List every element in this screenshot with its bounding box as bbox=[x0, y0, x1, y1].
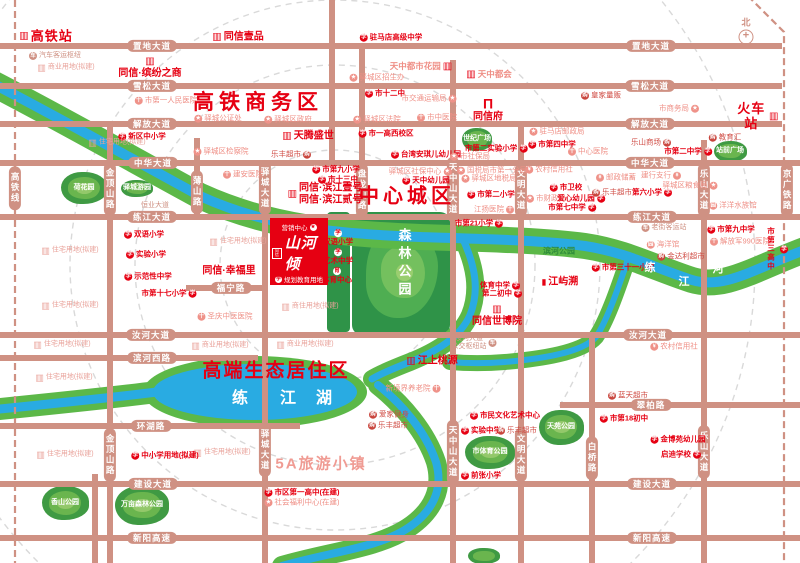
bnk-icon: ¥ bbox=[596, 174, 604, 182]
poi-市十二中: 学市十二中 bbox=[365, 90, 405, 99]
bld-icon: ▥ bbox=[282, 131, 291, 141]
poi-市区第一高中(在建): 学市区第一高中(在建) bbox=[265, 489, 340, 498]
poi-市第七中学: 市第七中学学 bbox=[548, 204, 596, 213]
poi-label: 农村信用社 bbox=[660, 343, 698, 352]
lnd-icon: ▥ bbox=[41, 247, 50, 256]
poi-市第一人民医院: 十市第一人民医院 bbox=[135, 97, 198, 106]
poi-label: 示范性中学 bbox=[134, 273, 172, 282]
planned-education-land-label: 学规划教育用地 bbox=[275, 274, 323, 284]
park-label: 市体育公园 bbox=[465, 448, 515, 456]
poi-海洋馆: 园海洋馆 bbox=[647, 241, 680, 250]
poi-label: 市第九中学 bbox=[717, 226, 755, 235]
road-建设大道 bbox=[0, 481, 800, 487]
poi-label: 双语小学 bbox=[323, 238, 353, 247]
sch-icon: 学 bbox=[592, 264, 600, 272]
poi-同信·滨江壹号同信·滨江贰号: ▥同信·滨江壹号 同信·滨江贰号 bbox=[288, 183, 363, 206]
poi-前张小学: 学前张小学 bbox=[461, 472, 501, 481]
bld-icon: ▥ bbox=[406, 356, 415, 366]
poi-驻马店邮政局: ★驻马店邮政局 bbox=[530, 128, 585, 137]
poi-label: 乐丰超市 bbox=[507, 427, 537, 436]
poi-label: 新境界养老院 bbox=[386, 385, 431, 394]
poi-label: 建安医院 bbox=[233, 171, 263, 180]
mkt-icon: 购 bbox=[581, 92, 589, 100]
marketing-center-icon: ★ bbox=[310, 224, 317, 231]
lnd-icon: ▥ bbox=[209, 238, 218, 247]
park-label: 天苑公园 bbox=[539, 423, 584, 431]
poi-label: 天中都会 bbox=[478, 70, 512, 80]
poi-汽车客运枢纽: 车汽车客运枢纽 bbox=[29, 52, 81, 60]
poi-label: 市民文化艺术中心 bbox=[480, 412, 540, 421]
hos-icon: 十 bbox=[198, 313, 206, 321]
lake-west-arm-bank bbox=[0, 391, 165, 410]
road-汝河大道 bbox=[0, 332, 800, 338]
poi-驿城区招生办: ★驿城区招生办 bbox=[350, 74, 405, 83]
sch-icon: 学 bbox=[514, 290, 522, 298]
sch-icon: 学 bbox=[461, 427, 469, 435]
poi-label: 市第二小学 bbox=[477, 191, 515, 200]
poi-label: 高铁站 bbox=[31, 30, 73, 45]
schw-icon: 学 bbox=[334, 248, 342, 256]
road-label-金顶山路: 金顶山路 bbox=[104, 162, 116, 216]
park-驿城游园: 驿城游园 bbox=[121, 180, 153, 197]
bld-icon: ▥ bbox=[769, 112, 778, 122]
gov-icon: ★ bbox=[353, 116, 361, 124]
road-label-汝河大道: 汝河大道 bbox=[623, 329, 673, 341]
gov-icon: ★ bbox=[462, 175, 470, 183]
poi-商业用地(拟建): ▥商业用地(拟建) bbox=[191, 342, 248, 351]
poi-label: 滨河公园 bbox=[543, 246, 575, 255]
park-荷花园: 荷花园 bbox=[61, 172, 107, 204]
poi-label: 艺术中学 bbox=[323, 257, 353, 266]
poi-label: 乐丰超市 bbox=[378, 422, 408, 431]
poi-市第二中学: 市第二中学学 bbox=[664, 148, 712, 157]
bld-icon: ▥ bbox=[212, 32, 221, 42]
area-label-中心城区: 中心城区 bbox=[359, 180, 455, 209]
sch-icon: 学 bbox=[707, 226, 715, 234]
poi-label: 市第九小学 bbox=[322, 166, 360, 175]
road-label-天中山大道: 天中山大道 bbox=[447, 420, 459, 485]
poi-label: 市区第一高中(在建) bbox=[275, 489, 340, 498]
poi-驿城区法院: ★驿城区法院 bbox=[353, 116, 401, 125]
road-新阳高速 bbox=[0, 535, 800, 541]
poi-住宅用地(拟建): ▥住宅用地(拟建) bbox=[33, 341, 90, 350]
mkt-icon: 购 bbox=[368, 422, 376, 430]
sch-icon: 学 bbox=[126, 251, 134, 259]
poi-双语小学: 学双语小学 bbox=[124, 231, 164, 240]
poi-label: 商住用地(拟建) bbox=[292, 303, 339, 311]
poi-体育中心: 育体育中心 bbox=[322, 267, 352, 285]
poi-label: 实验小学 bbox=[136, 251, 166, 260]
water-label-江: 江 bbox=[280, 384, 296, 408]
sch-icon: 学 bbox=[780, 245, 788, 253]
hos-icon: 十 bbox=[433, 385, 441, 393]
lnd-icon: ▥ bbox=[191, 342, 200, 351]
poi-label: 同信·滨江壹号 同信·滨江贰号 bbox=[299, 183, 362, 206]
attw-icon: 育 bbox=[333, 267, 341, 275]
poi-示范性中学: 学示范性中学 bbox=[124, 273, 172, 282]
poi-label: 市商务局 bbox=[659, 105, 689, 114]
lnd-icon: ▥ bbox=[41, 302, 50, 311]
poi-label: 市第十七小学 bbox=[142, 290, 187, 299]
road-label-白桥路: 白桥路 bbox=[586, 436, 598, 480]
poi-农村信用社: ¥农村信用社 bbox=[650, 343, 698, 352]
poi-label: 市第七中学 bbox=[548, 204, 586, 213]
sch-icon: 学 bbox=[131, 452, 139, 460]
poi-label: 蓝天超市 bbox=[618, 392, 648, 401]
mkt-icon: 购 bbox=[369, 411, 377, 419]
poi-label: 市社保局 bbox=[460, 153, 490, 162]
map-canvas: 置地大道置地大道雪松大道雪松大道解放大道解放大道中华大道中华大道练江大道练江大道… bbox=[0, 0, 800, 563]
park-inner bbox=[473, 551, 495, 562]
poi-江屿溯: ▮江屿溯 bbox=[542, 276, 578, 288]
hos-icon: 十 bbox=[710, 238, 718, 246]
poi-中小学用地(拟建): 学中小学用地(拟建) bbox=[131, 452, 199, 461]
poi-建行支行: 建行支行¥ bbox=[641, 172, 681, 181]
project-block: 营销中心★同信山河倾学规划教育用地 bbox=[270, 218, 328, 285]
poi-艺术中学: 学艺术中学 bbox=[323, 248, 353, 266]
schw-icon: 学 bbox=[334, 229, 342, 237]
road-天中山大道 bbox=[450, 60, 456, 563]
poi-建安医院: 十建安医院 bbox=[223, 171, 263, 180]
poi-label: 商业用地(拟建) bbox=[48, 64, 95, 72]
sch-icon: 学 bbox=[528, 141, 536, 149]
poi-恒业大道: 恒业大道 bbox=[141, 202, 169, 210]
sch-icon: 学 bbox=[693, 451, 701, 459]
lnd-icon: ▥ bbox=[281, 303, 290, 312]
poi-label: 住宅用地(拟建) bbox=[47, 451, 94, 459]
sch-icon: 学 bbox=[124, 273, 132, 281]
water-label-森林公园: 森林公园 bbox=[395, 228, 414, 300]
road-中华大道 bbox=[0, 160, 800, 166]
poi-label: 商业用地(拟建) bbox=[287, 341, 334, 349]
poi-label: 双语小学 bbox=[134, 231, 164, 240]
park-天苑公园: 天苑公园 bbox=[539, 410, 584, 445]
poi-住宅用地(拟建): ▥住宅用地(拟建) bbox=[41, 247, 98, 256]
sch-icon: 学 bbox=[495, 220, 503, 228]
mkt-icon: 购 bbox=[303, 151, 311, 159]
poi-label: 市十二中 bbox=[375, 90, 405, 99]
road-label-置地大道: 置地大道 bbox=[127, 40, 177, 52]
sch-icon: 学 bbox=[519, 145, 527, 153]
poi-label: 驿城区招生办 bbox=[360, 74, 405, 83]
poi-label: 汽车客运枢纽 bbox=[39, 52, 81, 60]
poi-label: 启迪学校 bbox=[661, 451, 691, 460]
poi-天中都市花园: 天中都市花园▥ bbox=[390, 62, 452, 72]
poi-label: 市第三高中 bbox=[764, 227, 778, 270]
poi-启迪学校: 启迪学校学 bbox=[661, 451, 701, 460]
gov-icon: ★ bbox=[264, 116, 272, 124]
sch-icon: 学 bbox=[265, 489, 273, 497]
lake-west-arm bbox=[0, 391, 165, 410]
hos-icon: 十 bbox=[506, 206, 514, 214]
poi-label: 海洋馆 bbox=[657, 241, 680, 250]
poi-高铁站: ▥高铁站 bbox=[19, 30, 72, 45]
lnd-icon: ▥ bbox=[88, 139, 97, 148]
sch-icon: 学 bbox=[461, 472, 469, 480]
poi-住宅用地(拟建): ▥住宅用地(拟建) bbox=[209, 238, 266, 247]
trf-icon: 车 bbox=[489, 339, 497, 347]
mkt-icon: 购 bbox=[497, 427, 505, 435]
poi-label: 同信·幸福里 bbox=[202, 265, 255, 277]
mkt-icon: 购 bbox=[657, 253, 665, 261]
bld-icon: ▥ bbox=[492, 305, 501, 315]
poi-住宅用地(拟建): ▥住宅用地(拟建) bbox=[36, 451, 93, 460]
compass-icon: 北+ bbox=[739, 16, 754, 45]
park-label: 世纪广场 bbox=[462, 135, 492, 143]
poi-中心医院: 十中心医院 bbox=[568, 148, 608, 157]
poi-label: 市第21小学 bbox=[455, 220, 493, 229]
project-logo-name: 山河倾 bbox=[285, 232, 326, 274]
water-label-练: 练 bbox=[232, 384, 248, 408]
poi-住宅用地(拟建): ▥住宅用地(拟建) bbox=[35, 374, 92, 383]
poi-金达利超市: 购金达利超市 bbox=[657, 253, 705, 262]
road-label-环湖路: 环湖路 bbox=[131, 420, 172, 432]
poi-label: 中心医院 bbox=[578, 148, 608, 157]
sch-icon: 学 bbox=[365, 90, 373, 98]
trf-icon: 车 bbox=[29, 52, 37, 60]
park-label: 站前广场 bbox=[714, 147, 747, 155]
poi-label: 乐丰超市 bbox=[271, 151, 301, 160]
poi-label: 皇家量贩 bbox=[591, 92, 621, 101]
lnd-icon: ▥ bbox=[33, 341, 42, 350]
poi-label: 商业用地(拟建) bbox=[202, 342, 249, 350]
lnd-icon: ▥ bbox=[37, 64, 46, 73]
poi-新境界养老院: 新境界养老院十 bbox=[386, 385, 441, 394]
poi-市第二小学: 学市第二小学 bbox=[467, 191, 515, 200]
poi-label: 洋洋水族馆 bbox=[719, 202, 757, 211]
att-icon: 园 bbox=[709, 202, 717, 210]
blk-icon: ▮ bbox=[542, 278, 546, 286]
poi-住宅用地(拟建): ▥住宅用地(拟建) bbox=[88, 139, 145, 148]
poi-同信·幸福里: 同信·幸福里 bbox=[202, 265, 255, 277]
poi-label: 恒业大道 bbox=[141, 202, 169, 210]
poi-label: 住宅用地(拟建) bbox=[46, 374, 93, 382]
mkt-icon: 购 bbox=[608, 392, 616, 400]
project-logo: 同信山河倾 bbox=[272, 232, 326, 274]
poi-label: 住宅用地(拟建) bbox=[52, 302, 99, 310]
sch-icon: 学 bbox=[588, 204, 596, 212]
poi-驿城区检察院: ★驿城区检察院 bbox=[194, 148, 249, 157]
poi-label: 教育汇 bbox=[719, 134, 742, 143]
poi-市第十七小学: 市第十七小学学 bbox=[142, 290, 197, 299]
poi-乐丰超市: 购乐丰超市 bbox=[592, 189, 632, 198]
gov-icon: ★ bbox=[710, 182, 718, 190]
road-label-金顶山路: 金顶山路 bbox=[104, 428, 116, 482]
poi-住宅用地(拟建): ▥住宅用地(拟建) bbox=[193, 449, 250, 458]
project-seal-icon: 同信 bbox=[272, 248, 282, 259]
road-label-翠柏路: 翠柏路 bbox=[631, 399, 672, 411]
poi-label: 驿城区法院 bbox=[363, 116, 401, 125]
gov-icon: ★ bbox=[691, 105, 699, 113]
area-label-高端生态居住区: 高端生态居住区 bbox=[202, 356, 349, 383]
poi-火车站: 火车站▥ bbox=[736, 102, 779, 132]
poi-市卫校: 学市卫校 bbox=[550, 184, 583, 193]
poi-天中都会: ▥天中都会 bbox=[466, 70, 511, 80]
road-label-建设大道: 建设大道 bbox=[627, 478, 677, 490]
park-市体育公园: 市体育公园 bbox=[465, 436, 515, 469]
mkt-icon: 购 bbox=[709, 134, 717, 142]
poi-label: 市交通运输局 bbox=[402, 95, 447, 104]
poi-label: 同信世博院 bbox=[472, 316, 522, 328]
sch-icon: 学 bbox=[550, 184, 558, 192]
area-label-高铁商务区: 高铁商务区 bbox=[193, 86, 323, 116]
poi-label: 住宅用地(拟建) bbox=[220, 238, 267, 246]
mkt-icon: 购 bbox=[592, 189, 600, 197]
poi-乐丰超市: 乐丰超市购 bbox=[271, 151, 311, 160]
poi-label: 住宅用地(拟建) bbox=[99, 139, 146, 147]
road-翠柏路 bbox=[560, 402, 800, 408]
poi-江上桃源: ▥江上桃源 bbox=[406, 355, 457, 367]
sch-icon: 学 bbox=[600, 415, 608, 423]
gov-icon: ★ bbox=[194, 115, 202, 123]
park-label: 驿城游园 bbox=[121, 184, 153, 192]
poi-金博苑幼儿园: 学金博苑幼儿园 bbox=[651, 436, 706, 445]
poi-label: 火车站 bbox=[736, 102, 768, 132]
poi-label: 驿城区粮食局 bbox=[663, 182, 708, 191]
sch-icon: 学 bbox=[467, 191, 475, 199]
road-label-新阳高速: 新阳高速 bbox=[627, 532, 677, 544]
road-label-文明大道: 文明大道 bbox=[515, 428, 527, 482]
poi-皇家量贩: 购皇家量贩 bbox=[581, 92, 621, 101]
road-unnamed bbox=[92, 474, 98, 563]
poi-第二初中: 第二初中学 bbox=[482, 290, 522, 299]
bld-icon: ▥ bbox=[288, 189, 297, 199]
poi-实验小学: 学实验小学 bbox=[126, 251, 166, 260]
water-label-练: 练 bbox=[645, 259, 656, 275]
area-label-5A旅游小镇: 5A旅游小镇 bbox=[275, 453, 366, 474]
road-label-薄山路: 薄山路 bbox=[191, 170, 203, 214]
poi-label: 住宅用地(拟建) bbox=[204, 449, 251, 457]
compass-rose: + bbox=[739, 30, 754, 45]
poi-驻马店高级中学: 学驻马店高级中学 bbox=[360, 34, 423, 43]
road-label-高铁线: 高铁线 bbox=[9, 166, 21, 210]
poi-乐丰超市: 购乐丰超市 bbox=[368, 422, 408, 431]
poi-市一高西校区: 学市一高西校区 bbox=[359, 130, 414, 139]
gov-icon: ★ bbox=[194, 148, 202, 156]
road-label-驿城大道: 驿城大道 bbox=[259, 423, 271, 477]
gov-icon: ★ bbox=[350, 74, 358, 82]
trf-icon: 车 bbox=[642, 224, 650, 232]
sch-icon: 学 bbox=[391, 151, 399, 159]
gov-icon: ★ bbox=[265, 499, 273, 507]
poi-同信府: Π同信府 bbox=[473, 97, 503, 122]
park-label: 香山公园 bbox=[42, 499, 89, 507]
marketing-center-label: 营销中心★ bbox=[282, 222, 317, 232]
bld-icon: ▥ bbox=[145, 57, 154, 67]
poi-label: 农村信用社 bbox=[535, 166, 573, 175]
poi-江扬医院: 江扬医院十 bbox=[474, 206, 514, 215]
poi-label: 驻马店高级中学 bbox=[370, 34, 423, 43]
poi-label: 乐山商场 bbox=[631, 139, 661, 148]
road-label-新阳高速: 新阳高速 bbox=[127, 532, 177, 544]
poi-label: 同信府 bbox=[473, 111, 503, 123]
poi-市第三高中: 市第三高中学 bbox=[764, 227, 788, 270]
poi-label: 圣庆中医医院 bbox=[208, 313, 253, 322]
hos-icon: 十 bbox=[417, 114, 425, 122]
poi-汝河大道公交枢纽站: 汝河大道 公交枢纽站车 bbox=[452, 335, 497, 351]
bld-icon: ▥ bbox=[443, 62, 452, 72]
poi-label: 爱家健身 bbox=[379, 411, 409, 420]
poi-label: 住宅用地(拟建) bbox=[52, 247, 99, 255]
poi-同信·缤纷之商: ▥同信·缤纷之商 bbox=[118, 57, 181, 80]
poi-label: 邮政储蓄 bbox=[606, 174, 636, 183]
park-label: 荷花园 bbox=[61, 184, 107, 192]
bnk-icon: ¥ bbox=[650, 343, 658, 351]
poi-label: 驿城区地税局 bbox=[472, 175, 517, 184]
road-label-练江大道: 练江大道 bbox=[127, 211, 177, 223]
poi-label: 驻马店邮政局 bbox=[540, 128, 585, 137]
poi-商业用地(拟建): ▥商业用地(拟建) bbox=[37, 64, 94, 73]
road-label-建设大道: 建设大道 bbox=[128, 478, 178, 490]
poi-label: 市一高西校区 bbox=[369, 130, 414, 139]
poi-label: 江扬医院 bbox=[474, 206, 504, 215]
poi-label: 金达利超市 bbox=[667, 253, 705, 262]
water-label-江: 江 bbox=[679, 273, 690, 289]
att-icon: 园 bbox=[647, 241, 655, 249]
road-label-雪松大道: 雪松大道 bbox=[127, 80, 177, 92]
poi-滨河公园: 滨河公园 bbox=[543, 246, 575, 255]
poi-label: 江上桃源 bbox=[418, 355, 458, 367]
poi-爱家健身: 购爱家健身 bbox=[369, 411, 409, 420]
hos-icon: 十 bbox=[135, 97, 143, 105]
lnd-icon: ▥ bbox=[35, 374, 44, 383]
poi-label: 金博苑幼儿园 bbox=[661, 436, 706, 445]
education-land-icon: 学 bbox=[275, 276, 282, 283]
poi-商住用地(拟建): ▥商住用地(拟建) bbox=[281, 303, 338, 312]
park-blob bbox=[468, 548, 500, 563]
road-label-置地大道: 置地大道 bbox=[626, 40, 676, 52]
poi-label: 前张小学 bbox=[471, 472, 501, 481]
poi-label: 驿城区检察院 bbox=[204, 148, 249, 157]
hos-icon: 十 bbox=[568, 148, 576, 156]
lnd-icon: ▥ bbox=[36, 451, 45, 460]
poi-圣庆中医医院: 十圣庆中医医院 bbox=[198, 313, 253, 322]
sch-icon: 学 bbox=[651, 436, 659, 444]
poi-label: 驿城区政府 bbox=[274, 116, 312, 125]
poi-label: 解放军990医院 bbox=[720, 238, 770, 247]
road-label-京广铁路: 京广铁路 bbox=[781, 163, 793, 217]
bnk-icon: ¥ bbox=[525, 166, 533, 174]
gate-icon: Π bbox=[483, 97, 493, 110]
sch-icon: 学 bbox=[360, 34, 368, 42]
poi-label: 同信壹品 bbox=[224, 31, 264, 43]
poi-label: 乐丰超市 bbox=[602, 189, 632, 198]
bld-icon: ▥ bbox=[19, 32, 28, 42]
poi-label: 汝河大道 公交枢纽站 bbox=[452, 335, 487, 351]
road-label-解放大道: 解放大道 bbox=[625, 118, 675, 130]
poi-市第九小学: 学市第九小学 bbox=[312, 166, 360, 175]
poi-市第18初中: 学市第18初中 bbox=[600, 415, 648, 424]
bnk-icon: ¥ bbox=[673, 172, 681, 180]
poi-市中医院: 十市中医院 bbox=[417, 114, 457, 123]
gov-icon: ★ bbox=[530, 128, 538, 136]
water-label-湖: 湖 bbox=[316, 384, 332, 408]
park-香山公园: 香山公园 bbox=[42, 486, 89, 520]
road-label-练江大道: 练江大道 bbox=[627, 211, 677, 223]
hos-icon: 十 bbox=[223, 171, 231, 179]
poi-市第九中学: 学市第九中学 bbox=[707, 226, 755, 235]
poi-label: 同信·缤纷之商 bbox=[118, 68, 181, 80]
poi-label: 天中都市花园 bbox=[390, 62, 441, 72]
poi-驿城区政府: ★驿城区政府 bbox=[264, 116, 312, 125]
poi-蓝天超市: 购蓝天超市 bbox=[608, 392, 648, 401]
poi-农村信用社: ¥农村信用社 bbox=[525, 166, 573, 175]
poi-市商务局: 市商务局★ bbox=[659, 105, 699, 114]
poi-label: 江屿溯 bbox=[548, 276, 578, 288]
poi-label: 市卫校 bbox=[560, 184, 583, 193]
poi-驿城区粮食局: 驿城区粮食局★ bbox=[663, 182, 718, 191]
poi-实验中学: 学实验中学 bbox=[461, 427, 501, 436]
